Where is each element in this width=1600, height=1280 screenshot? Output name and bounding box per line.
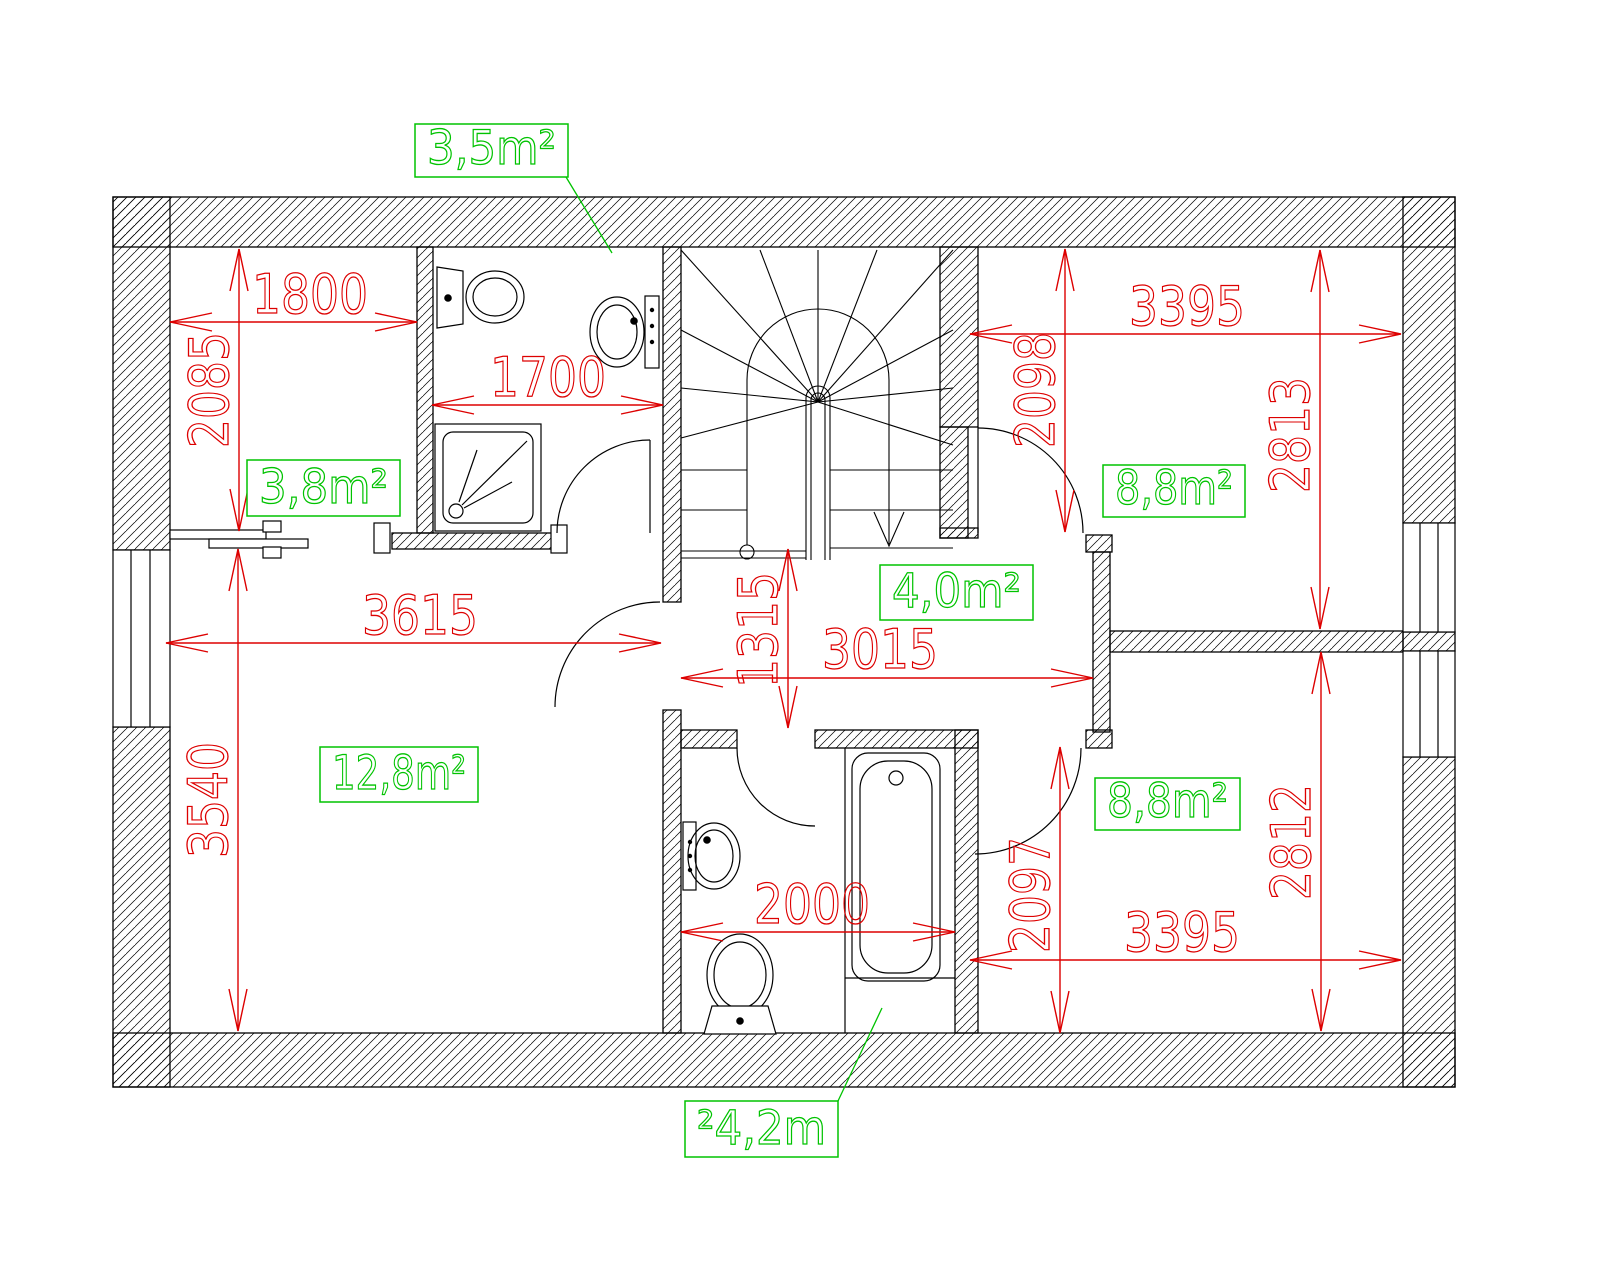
dimension-text: 3015 <box>822 618 938 681</box>
wall-stair-right-b <box>940 427 968 538</box>
dimension-text: 1700 <box>490 346 606 409</box>
dimension-text: 2813 <box>1259 377 1322 493</box>
window-left <box>113 550 170 727</box>
wall-partition-right-rooms <box>1110 631 1403 652</box>
wall-stair-right-a <box>940 247 978 427</box>
dimension-text: 2000 <box>754 873 870 936</box>
wall-bath-top-bottom <box>392 533 558 549</box>
wall-outer-top <box>113 197 1455 247</box>
area-label-text: 12,8m² <box>332 746 466 801</box>
area-label-text: 4,0m² <box>892 564 1021 619</box>
area-label: 3,8m² <box>247 460 400 516</box>
area-label: 4,0m² <box>880 564 1033 620</box>
dimension-text: 3615 <box>362 584 478 647</box>
area-label-text: 3,8m² <box>259 460 388 515</box>
wall-outer-bottom <box>113 1033 1455 1087</box>
wall-partition-topleft-bath <box>417 247 433 533</box>
area-label: 12,8m² <box>320 746 478 802</box>
wall-outer-right-upper <box>1403 197 1455 523</box>
dimension-text: 1800 <box>252 263 368 326</box>
dimension-text: 1315 <box>727 572 790 688</box>
wall-outer-left-lower <box>113 727 170 1087</box>
dimension-text: 3395 <box>1124 901 1240 964</box>
dimension-text: 3540 <box>177 742 240 858</box>
wall-cbath-east <box>955 730 978 1033</box>
area-label: 8,8m² <box>1103 461 1245 517</box>
wall-outer-left-upper <box>113 197 170 550</box>
area-label-text: ²4,2m <box>697 1101 826 1156</box>
area-label: 8,8m² <box>1095 774 1240 830</box>
window-right-bottom <box>1403 651 1455 757</box>
wall-bigroom-east <box>663 710 681 1033</box>
area-label-text: 8,8m² <box>1107 774 1228 829</box>
wall-stair-right-cap <box>940 528 978 538</box>
dimension-text: 2085 <box>178 332 241 448</box>
area-label-text: 3,5m² <box>427 121 556 176</box>
wall-cbath-top-right <box>815 730 978 748</box>
wall-cbath-top-left <box>681 730 737 748</box>
wall-outer-right-mid <box>1403 632 1455 651</box>
area-label-text: 8,8m² <box>1115 461 1233 516</box>
wall-outer-right-lower <box>1403 757 1455 1087</box>
wall-pillar-bottom <box>1086 730 1112 748</box>
wall-hall-east <box>1093 552 1110 732</box>
dimension-text: 2098 <box>1004 332 1067 448</box>
dimension-text: 2812 <box>1260 784 1323 900</box>
wall-stair-left <box>663 247 681 602</box>
dimension-text: 3395 <box>1129 275 1245 338</box>
dimension-text: 2097 <box>999 837 1062 953</box>
window-right-top <box>1403 523 1455 632</box>
floor-plan-canvas: 1800208517003395209828133615354013153015… <box>0 0 1600 1280</box>
wall-pillar-top <box>1086 535 1112 552</box>
floor-plan-page: 1800208517003395209828133615354013153015… <box>0 0 1600 1280</box>
